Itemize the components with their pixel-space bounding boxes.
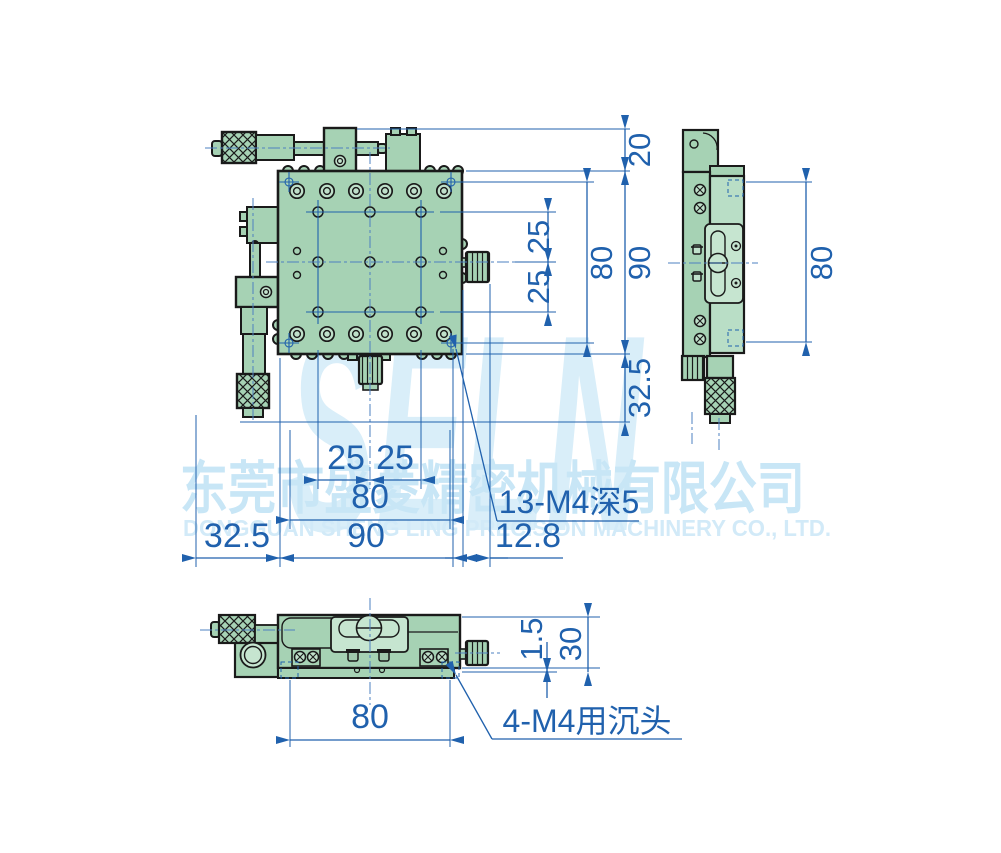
dim-front-width: 90	[347, 517, 385, 555]
x-micrometer	[212, 128, 420, 172]
dim-front-knob-offset: 12.8	[495, 517, 561, 555]
dim-bottom-height: 30	[553, 627, 588, 661]
dim-front-left-offset: 32.5	[204, 517, 270, 555]
y-micrometer	[236, 207, 278, 417]
dim-side-hole-span: 80	[804, 246, 839, 280]
dim-front-hole-span-h: 80	[351, 478, 389, 516]
bottom-micrometer-knurl	[219, 615, 255, 643]
dim-front-height: 90	[622, 246, 657, 280]
side-view	[668, 130, 758, 450]
dim-bottom-step: 1.5	[514, 617, 549, 660]
bottom-base-rail	[278, 668, 454, 678]
dim-front-pitch-v2: 25	[521, 270, 556, 304]
label-front-holes: 13-M4深5	[499, 484, 640, 520]
bottom-view	[200, 598, 500, 705]
technical-drawing-page: SELN 东莞市盛菱精密机械有限公司 DONGGUAN SHENG LING P…	[0, 0, 1001, 853]
dim-front-pitch-h2: 25	[376, 439, 414, 477]
dim-front-pitch-h1: 25	[327, 439, 365, 477]
x-adjust-knob	[462, 252, 489, 282]
side-micrometer	[682, 356, 735, 423]
label-bottom-holes: 4-M4用沉头	[503, 703, 672, 739]
dim-front-pitch-v1: 25	[521, 220, 556, 254]
dim-front-top-block: 20	[622, 133, 657, 167]
dim-front-hole-span-v: 80	[584, 246, 619, 280]
dim-bottom-hole-span: 80	[351, 698, 389, 736]
dim-front-bottom-offset: 32.5	[622, 358, 657, 418]
watermark-company-cn: 东莞市盛菱精密机械有限公司	[180, 457, 805, 521]
drawing-canvas: SELN 东莞市盛菱精密机械有限公司 DONGGUAN SHENG LING P…	[0, 0, 1001, 853]
side-lock-knob	[682, 356, 704, 380]
